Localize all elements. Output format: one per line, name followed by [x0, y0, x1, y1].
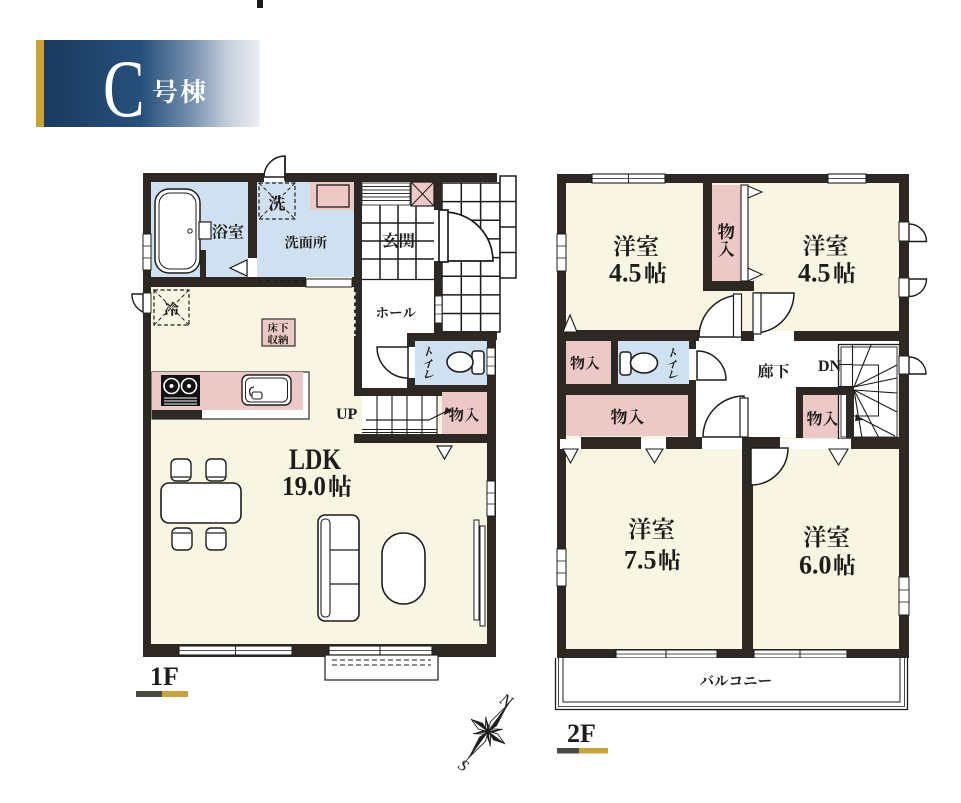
svg-text:UP: UP: [336, 406, 358, 423]
svg-text:4.5: 4.5: [798, 259, 831, 288]
svg-text:2F: 2F: [567, 719, 596, 748]
svg-text:4.5: 4.5: [609, 259, 642, 288]
svg-text:C: C: [103, 43, 145, 134]
svg-text:19.0: 19.0: [282, 471, 326, 501]
svg-text:7.5: 7.5: [624, 546, 657, 575]
svg-text:6.0: 6.0: [799, 551, 832, 580]
svg-text:DN: DN: [818, 358, 842, 375]
svg-text:1F: 1F: [150, 662, 179, 691]
